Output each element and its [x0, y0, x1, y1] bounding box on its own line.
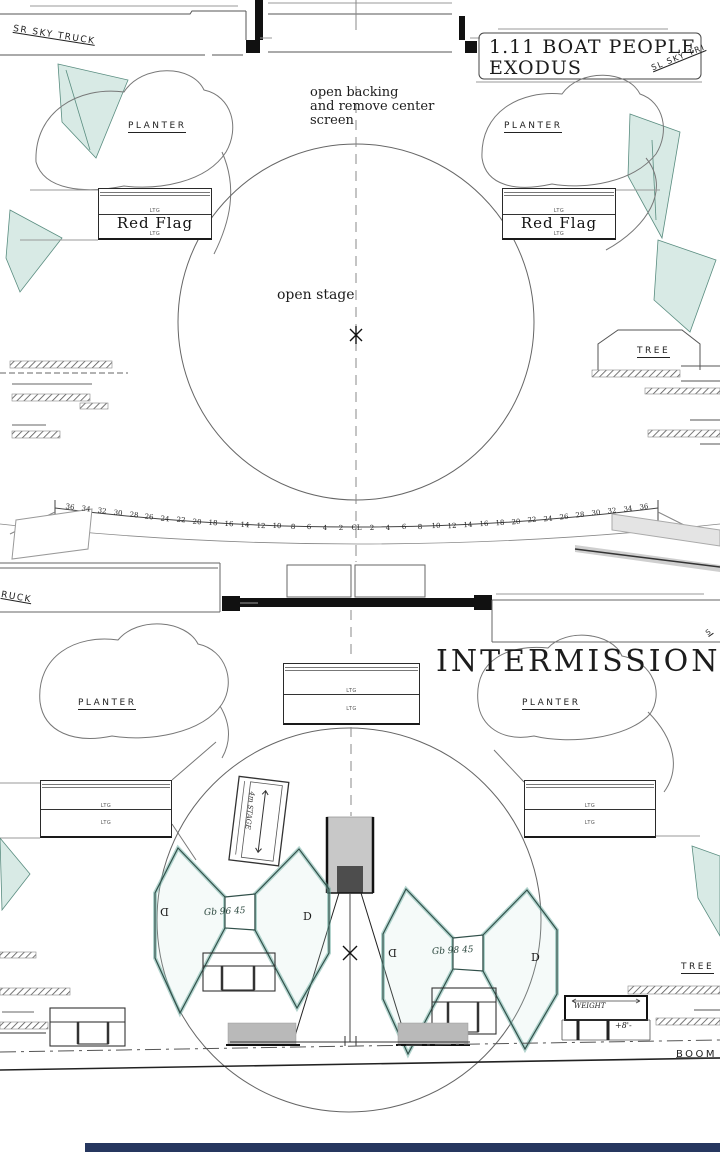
middle-trucks: [0, 563, 720, 642]
red-flag-unit-left: LTG Red Flag LTG: [98, 188, 212, 240]
ltg-label: LTG: [101, 820, 112, 826]
deck-gray-bars: [226, 1023, 470, 1046]
open-backing-note: open backing and remove center screen: [310, 86, 434, 128]
tree-label-bottom: TREE: [681, 962, 714, 974]
bottom-left-masking: [0, 952, 70, 1033]
intermission-title: INTERMISSION: [436, 644, 720, 679]
red-flag-label-right: Red Flag: [521, 216, 597, 231]
red-flag-label-left: Red Flag: [117, 216, 193, 231]
ltg-unit-left: LTG LTG: [40, 780, 172, 838]
open-stage-label: open stage: [277, 287, 355, 303]
planter-label-bottom-right: PLANTER: [522, 698, 580, 710]
weight-handwritten-label: WEIGHT: [574, 1002, 605, 1010]
ladder-unit: [229, 776, 289, 865]
boom-label: BOOM TR: [676, 1049, 720, 1061]
ltg-label: LTG: [150, 231, 161, 237]
bowtie-right-d-outer: D: [388, 947, 397, 960]
ltg-label: LTG: [585, 803, 596, 809]
bowtie-right-d-inner: D: [531, 951, 540, 964]
top-left-masking: [0, 361, 128, 438]
ltg-label: LTG: [554, 231, 565, 237]
planter-label-bottom-left: PLANTER: [78, 698, 136, 710]
red-flag-unit-right: LTG Red Flag LTG: [502, 188, 616, 240]
planter-label-top-right: PLANTER: [504, 121, 562, 133]
drawing-linework: [0, 0, 720, 1152]
ltg-unit-center: LTG LTG: [283, 663, 420, 725]
bowtie-left-d-outer: D: [160, 906, 169, 919]
top-stage-circle: [178, 86, 534, 560]
bowtie-left-d-inner: D: [303, 910, 312, 923]
ltg-label: LTG: [101, 803, 112, 809]
boom-label-wrap: BOOM TR: [676, 1042, 720, 1061]
ltg-label: LTG: [346, 688, 357, 694]
tree-label-top: TREE: [637, 346, 670, 358]
bottom-navy-bar: [85, 1143, 720, 1152]
ltg-unit-right: LTG LTG: [524, 780, 656, 838]
ltg-label: LTG: [585, 820, 596, 826]
seating-arcs: [0, 500, 720, 572]
height-note: +8'-: [615, 1021, 632, 1030]
planter-label-top-left: PLANTER: [128, 121, 186, 133]
scene-title-line1: 1.11 BOAT PEOPLE: [489, 37, 696, 58]
stage-plan-drawing: SR SKY TRUCK 1.11 BOAT PEOPLE EXODUS SL …: [0, 0, 720, 1152]
ltg-label: LTG: [346, 706, 357, 712]
center-star-mark: [350, 326, 362, 344]
